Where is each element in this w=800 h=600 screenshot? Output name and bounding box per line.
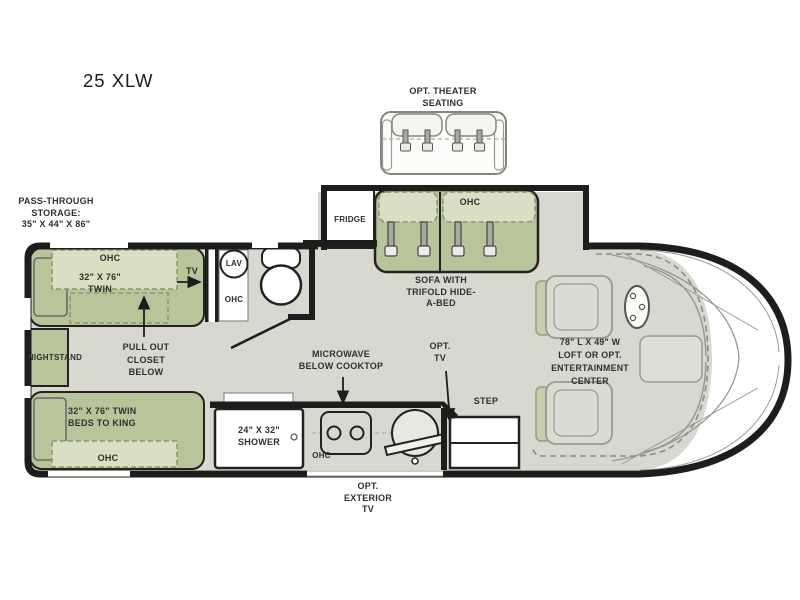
opt-tv-label: OPT. TV xyxy=(420,341,460,364)
window xyxy=(48,471,130,477)
bath-ohc-label: OHC xyxy=(209,295,259,305)
fridge-label: FRIDGE xyxy=(325,215,375,225)
faucet xyxy=(412,458,418,464)
bath-wall xyxy=(309,240,315,320)
window xyxy=(25,386,31,398)
galley-wall xyxy=(210,402,441,409)
bed2-label: 32" X 76" TWIN BEDS TO KING xyxy=(68,406,163,429)
cabinet-above-shower xyxy=(224,393,293,402)
entry-step xyxy=(450,417,519,468)
bath-door-stub xyxy=(288,314,315,320)
bed1-ohc-label: OHC xyxy=(85,253,135,265)
window xyxy=(50,243,128,249)
lav-label: LAV xyxy=(219,259,249,269)
floorplan-diagram: 25 XLW OPT. THEATER SEATING PASS-THROUGH… xyxy=(0,0,800,600)
steering-wheel xyxy=(625,286,649,328)
tv-wall xyxy=(205,245,219,322)
sofa-backrest-left xyxy=(379,192,437,222)
bed2-ohc-label: OHC xyxy=(83,453,133,465)
closet-label: PULL OUT CLOSET BELOW xyxy=(101,341,191,379)
shower-label: 24" X 32" SHOWER xyxy=(224,425,294,448)
passenger-seat xyxy=(536,382,612,444)
microwave-label: MICROWAVE BELOW COOKTOP xyxy=(291,349,391,372)
nightstand-label: NIGHTSTAND xyxy=(15,353,95,363)
bed1-label: 32" X 76" TWIN xyxy=(55,272,145,295)
theater-seating-label: OPT. THEATER SEATING xyxy=(383,86,503,109)
tv-label: TV xyxy=(177,266,207,278)
exterior-tv-label: OPT. EXTERIOR TV xyxy=(333,481,403,516)
window xyxy=(252,243,278,249)
loft-label: 78" L X 49" W LOFT OR OPT. ENTERTAINMENT… xyxy=(540,336,640,388)
driver-seat xyxy=(536,276,612,338)
kitchen-ohc-label: OHC xyxy=(299,451,344,461)
sofa-ohc-label: OHC xyxy=(445,197,495,209)
theater-seating xyxy=(381,112,506,174)
counter-end-wall xyxy=(441,408,447,470)
toilet-bowl xyxy=(261,266,301,305)
step-label: STEP xyxy=(461,396,511,408)
window xyxy=(25,298,31,330)
cushion xyxy=(392,114,442,136)
cushion xyxy=(446,114,496,136)
center-console xyxy=(640,336,702,382)
sofa-label: SOFA WITH TRIFOLD HIDE- A-BED xyxy=(391,275,491,310)
plan-title: 25 XLW xyxy=(83,70,153,92)
pass-through-storage-label: PASS-THROUGH STORAGE: 35" X 44" X 86" xyxy=(6,196,106,231)
